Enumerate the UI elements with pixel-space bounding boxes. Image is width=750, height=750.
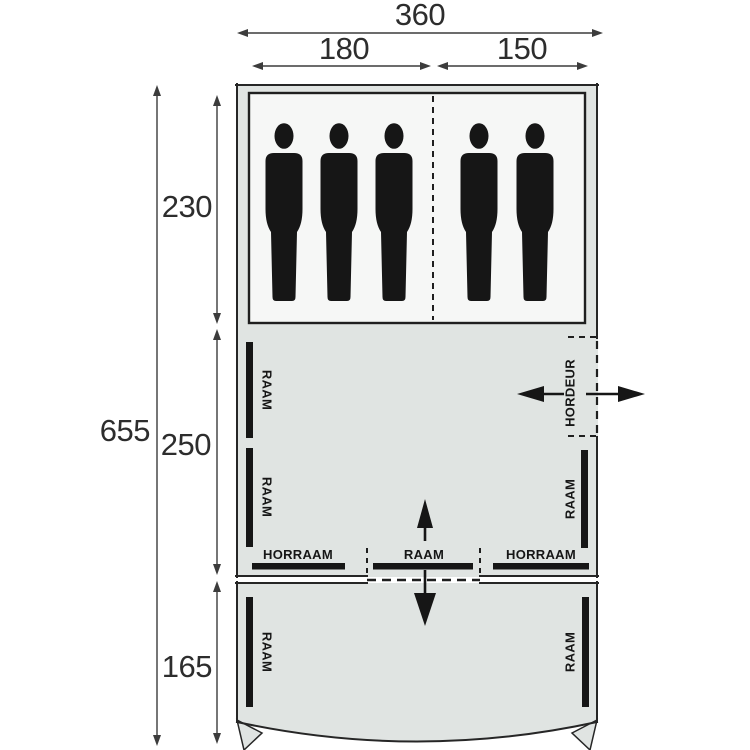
dim-depth-living: 250 — [161, 329, 221, 575]
dim-width-right: 150 — [437, 31, 588, 70]
window-label: RAAM — [260, 370, 275, 410]
mesh-door-label: HORDEUR — [563, 359, 578, 427]
dim-width-left: 180 — [252, 31, 431, 70]
dim-width-total: 360 — [237, 0, 603, 37]
window-bar — [246, 448, 253, 547]
window-label: RAAM — [260, 632, 275, 672]
dimension-arrow-icon — [153, 85, 161, 96]
dim-width-left-label: 180 — [319, 31, 369, 66]
mesh-window-label: HORRAAM — [506, 547, 576, 562]
window-label: RAAM — [563, 479, 578, 519]
dimension-arrow-icon — [213, 329, 221, 340]
dim-depth-living-label: 250 — [161, 427, 211, 462]
dim-width-right-label: 150 — [497, 31, 547, 66]
floorplan-canvas: RAAM RAAM HORDEUR RAAM HORRAAM RAAM HORR… — [0, 0, 750, 750]
dim-length-total-label: 655 — [100, 413, 150, 448]
dim-depth-sleeping: 230 — [162, 95, 221, 324]
dimension-arrow-icon — [153, 735, 161, 746]
dimension-arrow-icon — [213, 733, 221, 744]
window-bar — [581, 450, 588, 548]
window-bar — [246, 597, 253, 707]
dimension-arrow-icon — [252, 62, 263, 70]
window-bar — [582, 597, 589, 707]
dimension-arrow-icon — [437, 62, 448, 70]
window-label: RAAM — [563, 632, 578, 672]
dimension-arrow-icon — [213, 313, 221, 324]
window-label: RAAM — [404, 547, 444, 562]
tent-floorplan-diagram: RAAM RAAM HORDEUR RAAM HORRAAM RAAM HORR… — [0, 0, 750, 750]
dimension-arrow-icon — [420, 62, 431, 70]
dim-depth-sleeping-label: 230 — [162, 189, 212, 224]
dimension-arrow-icon — [237, 29, 248, 37]
dimension-arrow-icon — [213, 564, 221, 575]
dim-width-total-label: 360 — [395, 0, 445, 32]
dimension-arrow-icon — [592, 29, 603, 37]
dimension-arrow-icon — [577, 62, 588, 70]
dim-depth-front: 165 — [162, 581, 221, 744]
dim-depth-front-label: 165 — [162, 649, 212, 684]
window-bar — [246, 342, 253, 438]
window-label: RAAM — [260, 477, 275, 517]
entrance-arrow-out-icon — [618, 386, 645, 402]
mesh-window-bar — [252, 563, 345, 570]
dimension-arrow-icon — [213, 581, 221, 592]
mesh-window-bar — [493, 563, 589, 570]
mesh-window-label: HORRAAM — [263, 547, 333, 562]
dimension-arrow-icon — [213, 95, 221, 106]
window-bar — [373, 563, 473, 570]
dim-length-total: 655 — [100, 85, 161, 746]
tent-front-canopy — [237, 583, 597, 742]
